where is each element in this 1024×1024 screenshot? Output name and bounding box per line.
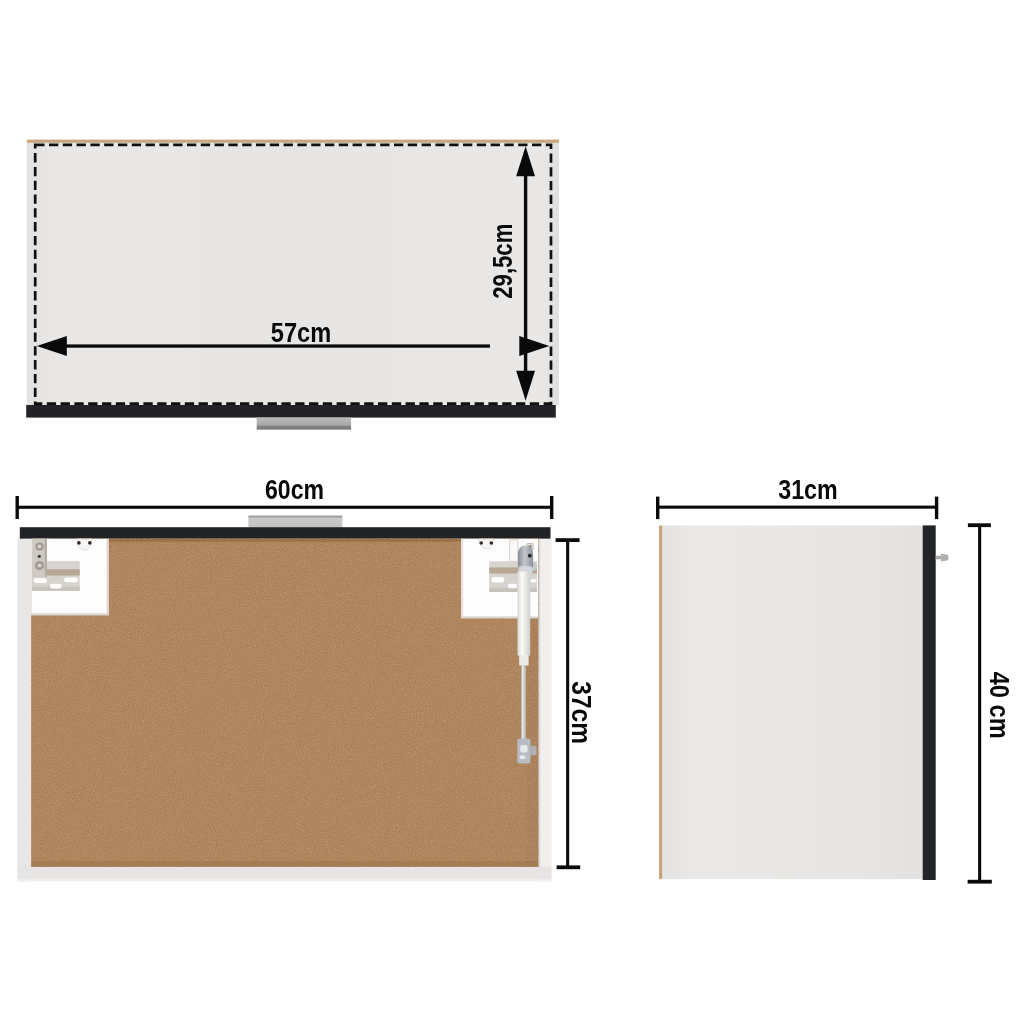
svg-text:40 cm: 40 cm [984,672,1014,739]
svg-text:31cm: 31cm [778,475,838,505]
svg-text:60cm: 60cm [265,475,324,505]
svg-text:57cm: 57cm [271,318,332,348]
svg-text:29,5cm: 29,5cm [488,224,518,299]
svg-text:37cm: 37cm [566,681,596,744]
